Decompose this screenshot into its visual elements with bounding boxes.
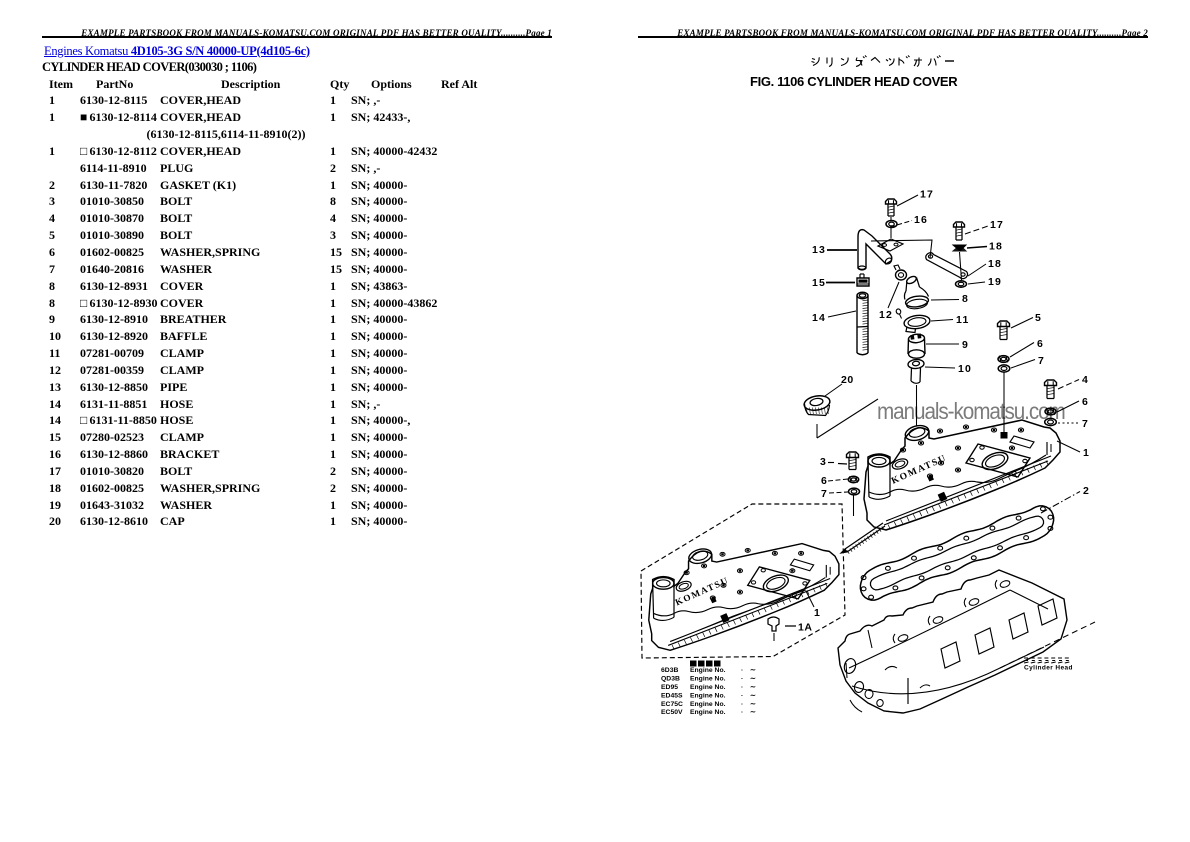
svg-text:6: 6 (1037, 338, 1044, 350)
svg-text:Engine No.: Engine No. (690, 709, 726, 716)
svg-text:1: 1 (814, 607, 820, 619)
svg-text:19: 19 (988, 276, 1002, 288)
svg-text:·: · (741, 676, 743, 683)
svg-text:EC75C: EC75C (661, 701, 683, 708)
svg-text:8: 8 (962, 293, 969, 305)
svg-text:∼: ∼ (750, 701, 756, 708)
svg-text:2: 2 (1083, 485, 1090, 497)
svg-text:6: 6 (821, 475, 827, 487)
svg-text:1: 1 (1083, 447, 1090, 459)
svg-text:18: 18 (989, 241, 1003, 253)
svg-text:15: 15 (812, 277, 826, 289)
svg-text:·: · (741, 692, 743, 699)
svg-text:7: 7 (821, 488, 827, 500)
svg-text:6: 6 (1082, 396, 1089, 408)
svg-text:18: 18 (988, 258, 1002, 270)
svg-text:ED95: ED95 (661, 684, 678, 691)
svg-text:4: 4 (1082, 374, 1089, 386)
svg-text:·: · (741, 701, 743, 708)
svg-text:12: 12 (879, 309, 893, 321)
svg-text:∼: ∼ (750, 676, 756, 683)
svg-text:·: · (741, 667, 743, 674)
svg-text:16: 16 (914, 214, 928, 226)
svg-text:11: 11 (956, 314, 970, 326)
svg-text:20: 20 (841, 374, 854, 386)
svg-text:Engine No.: Engine No. (690, 684, 726, 691)
svg-text:QD3B: QD3B (661, 676, 680, 683)
svg-text:3: 3 (820, 456, 826, 468)
svg-text:13: 13 (812, 244, 826, 256)
svg-text:17: 17 (990, 219, 1004, 231)
svg-text:KOMATSU: KOMATSU (890, 453, 949, 486)
svg-text:6D3B: 6D3B (661, 667, 678, 674)
svg-text:Engine No.: Engine No. (690, 667, 726, 674)
svg-text:1A: 1A (798, 622, 812, 634)
svg-text:9: 9 (962, 339, 969, 351)
svg-text:·: · (741, 709, 743, 716)
svg-text:EC50V: EC50V (661, 709, 683, 716)
svg-text:7: 7 (1038, 355, 1045, 367)
svg-text:∼: ∼ (750, 709, 756, 716)
svg-text:Engine No.: Engine No. (690, 676, 726, 683)
svg-text:7: 7 (1082, 418, 1089, 430)
svg-text:·: · (741, 684, 743, 691)
svg-text:Engine No.: Engine No. (690, 701, 726, 708)
svg-text:∼: ∼ (750, 692, 756, 699)
svg-text:5: 5 (1035, 312, 1042, 324)
svg-text:∼: ∼ (750, 667, 756, 674)
svg-text:Engine No.: Engine No. (690, 692, 726, 699)
svg-text:14: 14 (812, 312, 826, 324)
svg-text:17: 17 (920, 189, 934, 201)
svg-text:Cylinder Head: Cylinder Head (1024, 665, 1073, 672)
svg-text:ED45S: ED45S (661, 692, 683, 699)
svg-text:∼: ∼ (750, 684, 756, 691)
svg-text:10: 10 (958, 363, 972, 375)
